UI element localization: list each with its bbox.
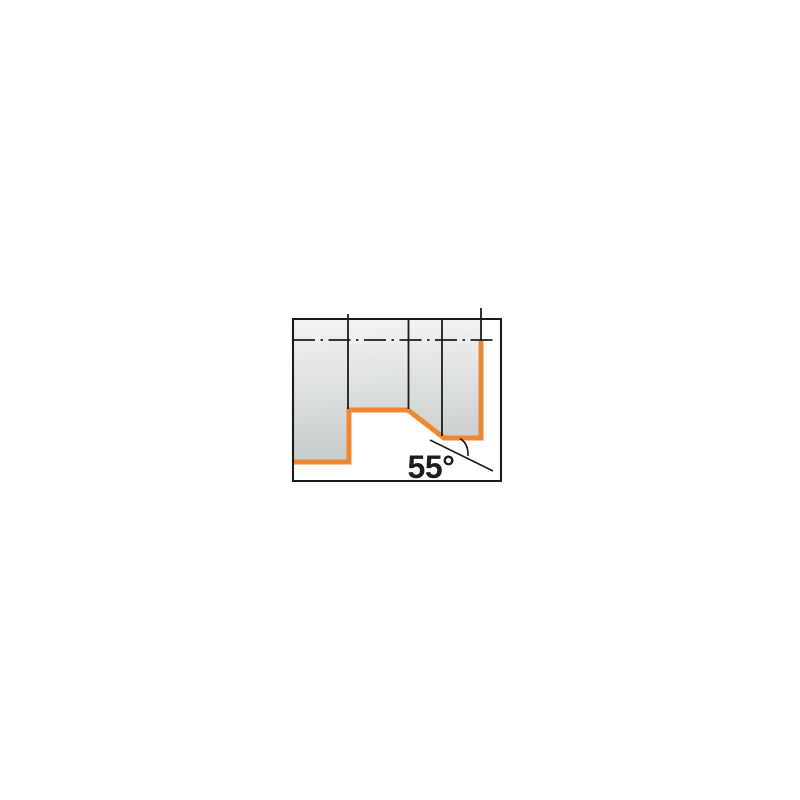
- angle-arc: [460, 439, 468, 457]
- tool-angle-diagram: 55°: [0, 0, 800, 800]
- angle-label: 55°: [408, 449, 455, 485]
- workpiece-body: [293, 320, 481, 462]
- page-canvas: 55°: [0, 0, 800, 800]
